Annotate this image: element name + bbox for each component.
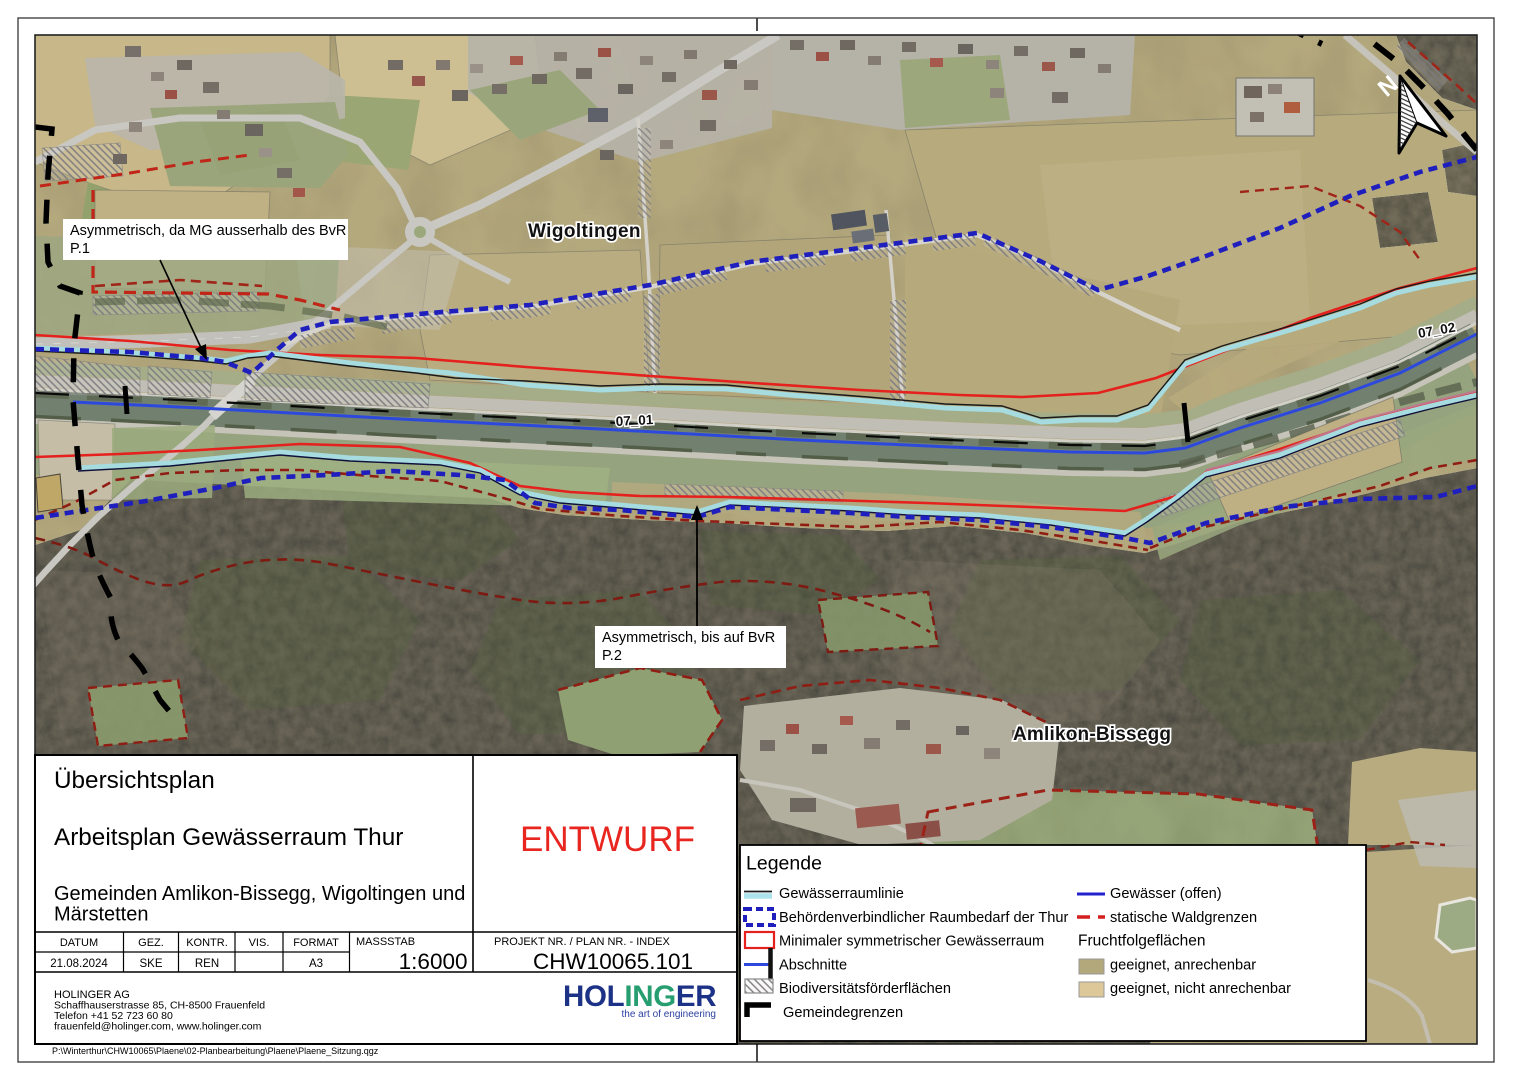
- svg-text:A3: A3: [309, 958, 323, 970]
- svg-text:P.1: P.1: [70, 241, 90, 257]
- svg-text:Legende: Legende: [746, 853, 822, 875]
- svg-text:statische Waldgrenzen: statische Waldgrenzen: [1110, 910, 1257, 926]
- svg-text:geeignet, nicht anrechenbar: geeignet, nicht anrechenbar: [1110, 981, 1291, 997]
- svg-text:the art of engineering: the art of engineering: [621, 1009, 716, 1020]
- svg-text:Asymmetrisch, da MG ausserhalb: Asymmetrisch, da MG ausserhalb des BvR: [70, 223, 346, 239]
- svg-text:07_01: 07_01: [615, 412, 654, 429]
- svg-text:Gemeinden Amlikon-Bissegg, Wig: Gemeinden Amlikon-Bissegg, Wigoltingen u…: [54, 883, 465, 905]
- svg-text:DATUM: DATUM: [60, 937, 98, 949]
- svg-text:Minimaler symmetrischer Gewäss: Minimaler symmetrischer Gewässerraum: [779, 934, 1044, 950]
- svg-text:Behördenverbindlicher Raumbeda: Behördenverbindlicher Raumbedarf der Thu…: [779, 910, 1068, 926]
- svg-text:REN: REN: [195, 958, 219, 970]
- svg-text:geeignet, anrechenbar: geeignet, anrechenbar: [1110, 958, 1256, 974]
- svg-text:Gewässerraumlinie: Gewässerraumlinie: [779, 886, 904, 902]
- svg-text:CHW10065.101: CHW10065.101: [533, 949, 693, 974]
- svg-text:Arbeitsplan Gewässerraum Thur: Arbeitsplan Gewässerraum Thur: [54, 824, 403, 851]
- svg-text:Fruchtfolgeflächen: Fruchtfolgeflächen: [1078, 933, 1206, 950]
- svg-text:Gewässer (offen): Gewässer (offen): [1110, 886, 1222, 902]
- svg-text:21.08.2024: 21.08.2024: [50, 958, 108, 970]
- svg-text:1:6000: 1:6000: [399, 949, 468, 974]
- svg-text:KONTR.: KONTR.: [186, 937, 228, 949]
- svg-text:Wigoltingen: Wigoltingen: [528, 221, 641, 242]
- svg-text:frauenfeld@holinger.com, www.h: frauenfeld@holinger.com, www.holinger.co…: [54, 1021, 262, 1033]
- svg-text:Märstetten: Märstetten: [54, 904, 148, 926]
- svg-text:Abschnitte: Abschnitte: [779, 958, 847, 974]
- svg-text:MASSSTAB: MASSSTAB: [356, 936, 415, 948]
- svg-text:GEZ.: GEZ.: [138, 937, 164, 949]
- svg-text:P.2: P.2: [602, 648, 622, 664]
- svg-text:SKE: SKE: [139, 958, 162, 970]
- svg-text:Übersichtsplan: Übersichtsplan: [54, 767, 215, 794]
- svg-text:Asymmetrisch, bis auf BvR: Asymmetrisch, bis auf BvR: [602, 630, 775, 646]
- svg-text:ENTWURF: ENTWURF: [520, 820, 695, 859]
- svg-text:Gemeindegrenzen: Gemeindegrenzen: [783, 1005, 903, 1021]
- svg-text:Amlikon-Bissegg: Amlikon-Bissegg: [1013, 724, 1171, 745]
- svg-text:P:\Winterthur\CHW10065\Plaene\: P:\Winterthur\CHW10065\Plaene\02-Planbea…: [52, 1046, 379, 1056]
- svg-text:Biodiversitätsförderflächen: Biodiversitätsförderflächen: [779, 981, 951, 997]
- svg-text:PROJEKT NR. / PLAN NR. - INDEX: PROJEKT NR. / PLAN NR. - INDEX: [494, 936, 670, 948]
- svg-text:FORMAT: FORMAT: [293, 937, 339, 949]
- svg-text:VIS.: VIS.: [249, 937, 270, 949]
